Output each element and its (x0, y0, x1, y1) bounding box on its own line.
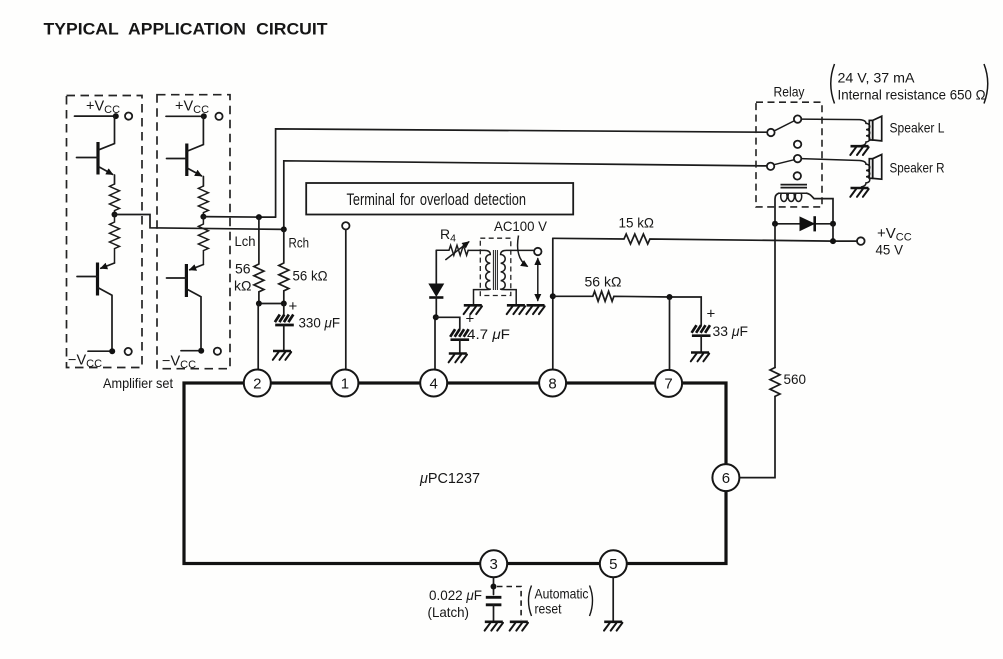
svg-text:2: 2 (253, 375, 261, 392)
svg-text:4: 4 (430, 375, 438, 392)
svg-text:μPC1237: μPC1237 (419, 470, 480, 487)
svg-text:1: 1 (341, 375, 349, 392)
svg-text:reset: reset (535, 601, 562, 617)
svg-text:Amplifier set: Amplifier set (103, 375, 173, 391)
svg-text:7: 7 (664, 376, 672, 393)
svg-text:24 V, 37 mA: 24 V, 37 mA (838, 70, 916, 86)
svg-text:+: + (707, 306, 716, 323)
svg-text:56 kΩ: 56 kΩ (293, 268, 328, 284)
svg-text:56 kΩ: 56 kΩ (585, 274, 622, 290)
svg-text:56: 56 (235, 261, 251, 277)
svg-text:Rch: Rch (289, 235, 310, 251)
svg-text:Automatic: Automatic (535, 586, 589, 602)
svg-text:6: 6 (722, 470, 730, 487)
svg-text:Relay: Relay (774, 84, 805, 100)
svg-text:Speaker R: Speaker R (890, 160, 945, 176)
svg-text:Terminal for overload detectio: Terminal for overload detection (347, 190, 527, 209)
svg-text:33 μF: 33 μF (713, 323, 749, 339)
svg-text:15 kΩ: 15 kΩ (619, 215, 655, 231)
svg-text:+: + (289, 298, 298, 315)
svg-text:AC100 V: AC100 V (494, 218, 548, 234)
svg-text:Internal resistance 650 Ω: Internal resistance 650 Ω (838, 87, 986, 103)
svg-text:8: 8 (548, 375, 556, 392)
svg-text:(Latch): (Latch) (428, 604, 470, 620)
svg-text:3: 3 (490, 556, 498, 573)
svg-text:45 V: 45 V (876, 242, 904, 258)
svg-text:Speaker L: Speaker L (890, 120, 945, 136)
svg-text:Lch: Lch (235, 233, 256, 249)
svg-text:330 μF: 330 μF (299, 315, 341, 331)
svg-text:5: 5 (609, 556, 617, 573)
svg-text:4.7 μF: 4.7 μF (467, 326, 510, 342)
svg-text:TYPICAL APPLICATION CIRCUIT: TYPICAL APPLICATION CIRCUIT (44, 21, 328, 39)
svg-text:560: 560 (784, 371, 807, 387)
svg-text:kΩ: kΩ (234, 278, 251, 294)
svg-text:0.022 μF: 0.022 μF (429, 587, 482, 603)
